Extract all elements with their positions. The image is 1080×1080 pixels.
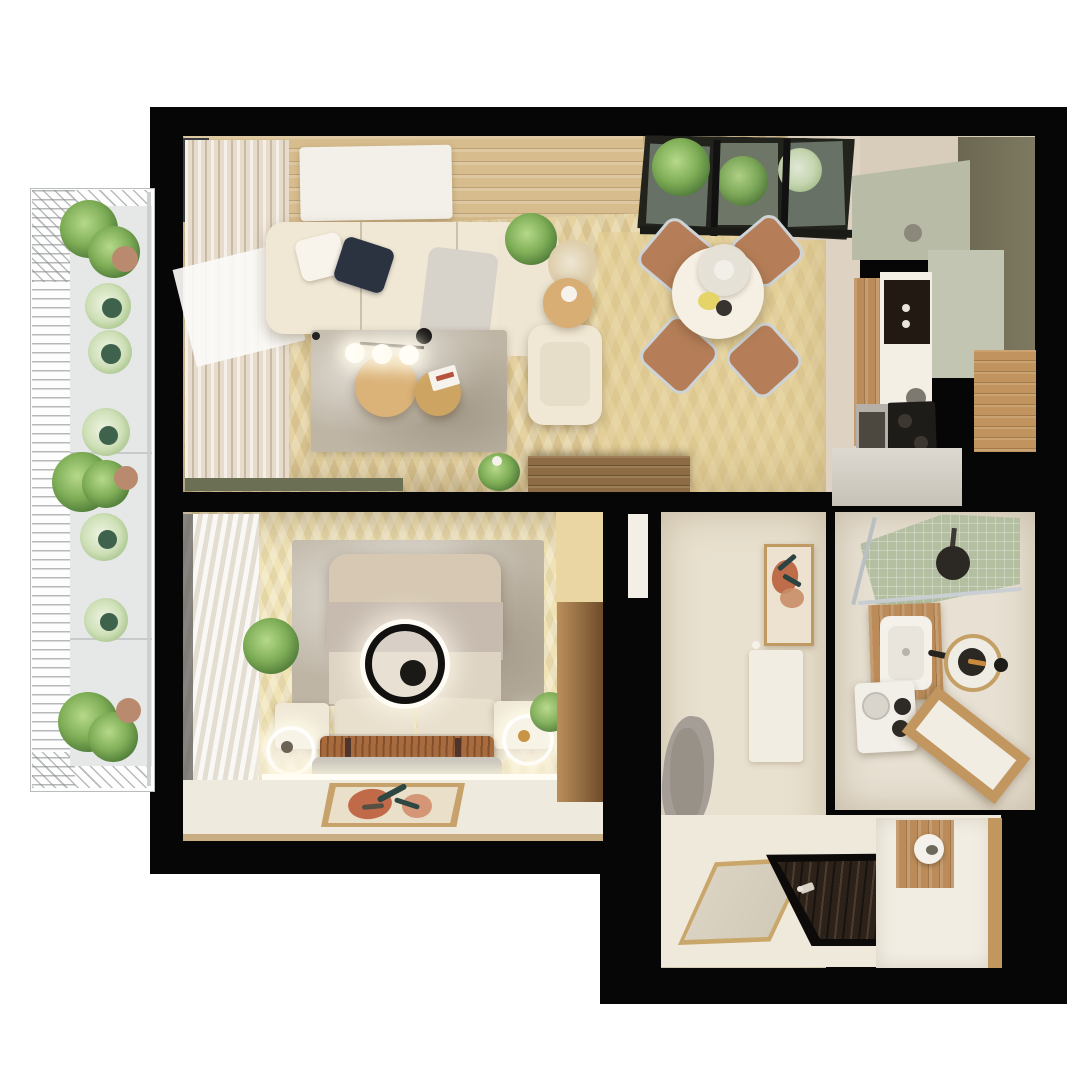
bedroom-plant-left <box>243 618 299 674</box>
balcony-pot-green-4 <box>98 530 117 549</box>
entrance-wardrobe-wood-side <box>988 818 1002 968</box>
dining-pendant-core <box>714 260 734 280</box>
bedroom-wardrobe <box>557 602 603 802</box>
bedside-lamp-left-core <box>281 741 293 753</box>
bedroom-baseboard <box>183 834 603 841</box>
balcony-pot-terracotta-2 <box>114 466 138 490</box>
hallway-art-blob-2 <box>780 588 804 608</box>
balcony-pot-terracotta-3 <box>116 698 141 723</box>
balcony-glass-edge <box>147 192 151 786</box>
kitchen-hood-knob <box>904 224 922 242</box>
balcony-pot-green-5 <box>100 613 118 631</box>
shower-head <box>936 546 970 580</box>
sideboard-wood <box>528 456 690 492</box>
bathroom-sink-drain <box>902 648 910 656</box>
bedroom-curtain-dark-edge <box>183 514 193 800</box>
rug-black-dot <box>312 332 320 340</box>
entrance-helmet-visor <box>926 845 938 855</box>
washer-dial-1 <box>894 698 911 715</box>
ring-light-speaker-dot <box>400 660 426 686</box>
sofa-throw-blanket <box>419 246 499 342</box>
window-sill-olive-strip <box>185 478 403 491</box>
balcony-pot-green-3 <box>99 426 118 445</box>
apartment-top-view-render <box>0 0 1080 1080</box>
dining-table-bowl <box>716 300 732 316</box>
bathroom-black-dot <box>994 658 1008 672</box>
floor-lamp-bulb-1 <box>345 343 365 363</box>
side-table-vase <box>561 286 577 302</box>
kitchen-island-counter <box>832 448 962 506</box>
kitchen-niche-jar-2 <box>902 320 910 328</box>
bedside-lamp-right-core <box>518 730 530 742</box>
kitchen-upper-cabinets-sage <box>852 160 970 260</box>
kitchen-burner-1 <box>898 414 912 428</box>
armchair-white-seat <box>540 342 590 406</box>
entrance-key-ring <box>797 886 803 892</box>
washing-machine <box>854 680 918 753</box>
floor-lamp-bulb-3 <box>399 345 419 365</box>
kitchen-niche-jar-1 <box>902 304 910 312</box>
kitchen-wood-lower-right <box>974 350 1036 452</box>
washer-vent <box>862 692 890 720</box>
floor-plant-bloom <box>492 456 502 466</box>
balcony-pot-green-1 <box>102 298 122 318</box>
hallway-radiator <box>749 650 803 762</box>
hallway-hook <box>752 641 760 649</box>
floor-lamp-bulb-2 <box>372 344 392 364</box>
kitchen-backsplash-niche <box>884 280 930 344</box>
floor-lamp-ball <box>416 328 432 344</box>
bedroom-door-white <box>628 514 648 598</box>
balcony-pot-terracotta-1 <box>112 246 138 272</box>
hallway-towel-shade <box>670 728 704 822</box>
skylight-plant-1 <box>652 138 710 196</box>
skylight-plant-2 <box>718 156 768 206</box>
ceiling-ac-panel <box>299 145 452 222</box>
balcony-pot-green-2 <box>101 344 121 364</box>
